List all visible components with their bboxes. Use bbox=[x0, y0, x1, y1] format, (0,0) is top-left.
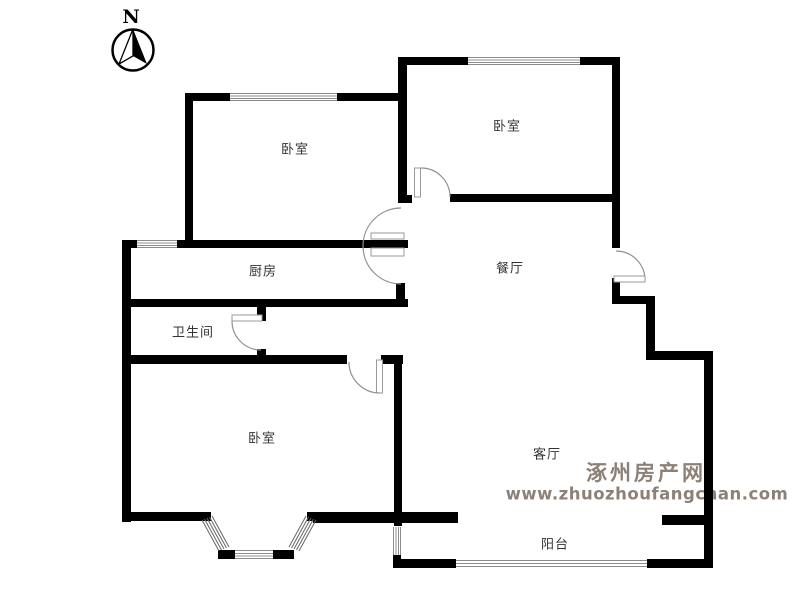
room-label-kitchen: 厨房 bbox=[249, 261, 277, 280]
floor-plan-drawing bbox=[0, 0, 800, 600]
room-label-bathroom: 卫生间 bbox=[172, 322, 214, 341]
room-label-bedroom-top-right: 卧室 bbox=[493, 116, 521, 135]
room-label-bedroom-bottom-left: 卧室 bbox=[248, 428, 276, 447]
room-label-living: 客厅 bbox=[533, 444, 561, 463]
floor-plan-canvas: 涿州房产网 www.zhuozhoufangchan.com bbox=[0, 0, 800, 600]
walls-layer bbox=[122, 57, 713, 568]
room-label-bedroom-top-left: 卧室 bbox=[281, 139, 309, 158]
north-label: N bbox=[122, 6, 139, 28]
room-label-dining: 餐厅 bbox=[496, 258, 524, 277]
windows-layer bbox=[137, 57, 647, 567]
bay-window-hatch bbox=[202, 516, 316, 551]
room-label-balcony: 阳台 bbox=[541, 534, 569, 553]
north-arrow-icon bbox=[113, 29, 154, 71]
